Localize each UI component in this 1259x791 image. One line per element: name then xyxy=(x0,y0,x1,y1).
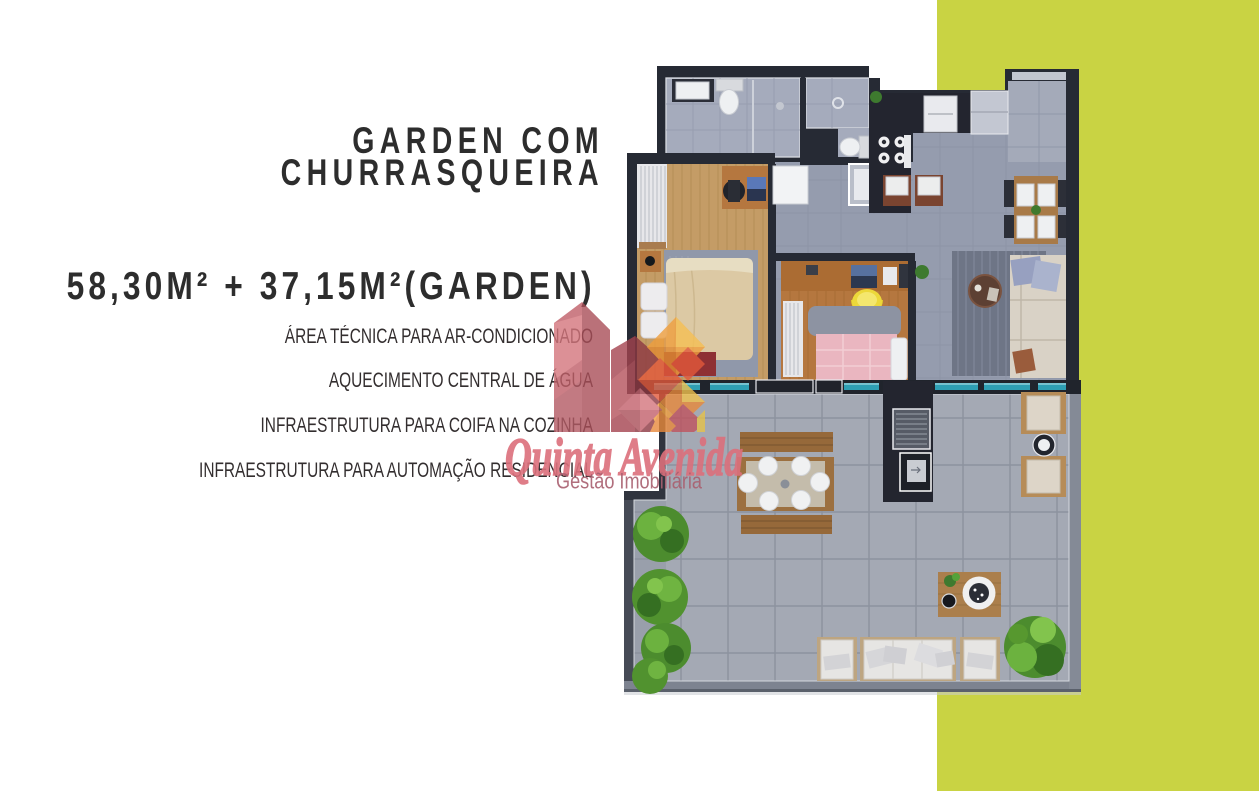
svg-text:Gestão Imobiliária: Gestão Imobiliária xyxy=(556,469,702,494)
